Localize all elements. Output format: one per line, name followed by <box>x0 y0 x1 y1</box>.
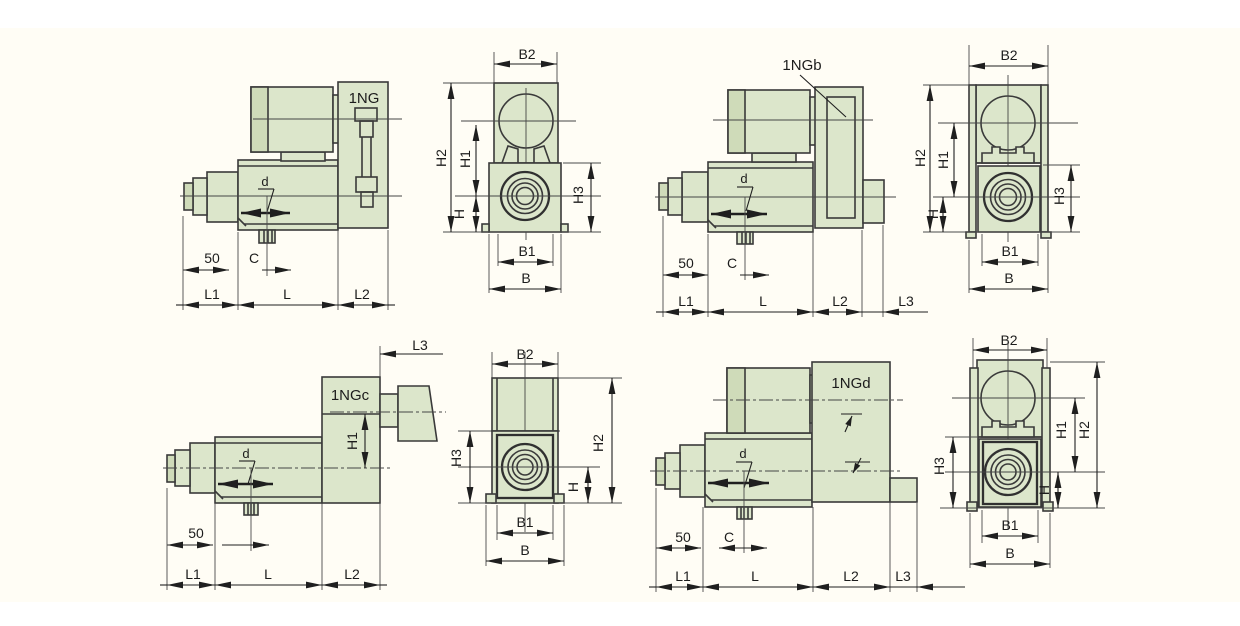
side-plate-left <box>970 368 978 507</box>
dim-label-l2: L2 <box>843 568 859 584</box>
dim-label-h3: H3 <box>1051 187 1067 205</box>
dim-label-h3: H3 <box>570 186 586 204</box>
dim-label-d: d <box>740 171 747 186</box>
technical-drawing-page: d 50 C L1 L L2 1NG B2 <box>0 0 1240 626</box>
dim-label-l3: L3 <box>412 337 428 353</box>
dim-label-b1: B1 <box>516 514 533 530</box>
base-flange-right <box>1041 232 1051 238</box>
dim-label-b: B <box>1005 545 1014 561</box>
motor-end-cap <box>251 87 268 152</box>
variant-label-1ng: 1NG <box>349 90 380 107</box>
dim-label-h1: H1 <box>1053 421 1069 439</box>
dim-label-c: C <box>249 250 259 266</box>
base-flange-left <box>966 232 976 238</box>
dim-label-h1: H1 <box>935 151 951 169</box>
shaft-knob <box>668 178 682 215</box>
gear-body <box>238 160 338 230</box>
dim-label-d: d <box>261 174 268 189</box>
variant-label-1ngc: 1NGc <box>331 387 370 404</box>
scanned-paper-background <box>0 28 1240 602</box>
motor-end-cap <box>727 368 745 433</box>
shaft-tip <box>167 455 175 482</box>
dim-label-b2: B2 <box>1000 47 1017 63</box>
motor-pedestal <box>752 153 796 162</box>
dim-label-l: L <box>264 566 272 582</box>
dim-label-h: H <box>925 209 941 219</box>
lower-housing <box>489 163 561 232</box>
dim-label-b1: B1 <box>1001 517 1018 533</box>
dim-label-h3: H3 <box>931 457 947 475</box>
dim-label-b1: B1 <box>518 243 535 259</box>
dim-label-h: H <box>451 209 467 219</box>
dim-label-50: 50 <box>204 250 220 266</box>
dim-label-50: 50 <box>675 529 691 545</box>
dim-label-b: B <box>1004 270 1013 286</box>
dim-label-l: L <box>751 568 759 584</box>
dim-label-l2: L2 <box>344 566 360 582</box>
dim-label-h2: H2 <box>590 434 606 452</box>
shaft-tip <box>659 183 668 210</box>
dim-label-l: L <box>283 286 291 302</box>
dim-label-l1: L1 <box>185 566 201 582</box>
dim-label-h2: H2 <box>912 149 928 167</box>
motor-pedestal <box>281 152 325 161</box>
base-flange-left <box>967 502 977 511</box>
side-plate-left <box>969 85 976 232</box>
rear-tab <box>890 478 917 502</box>
dim-label-h2: H2 <box>433 149 449 167</box>
dim-label-d: d <box>739 446 746 461</box>
dim-label-l3: L3 <box>898 293 914 309</box>
dim-label-50: 50 <box>678 255 694 271</box>
gear-body <box>215 437 322 503</box>
dim-label-l1: L1 <box>204 286 220 302</box>
dim-label-h2: H2 <box>1076 421 1092 439</box>
variant-label-1ngd: 1NGd <box>831 375 870 392</box>
dim-label-l1: L1 <box>678 293 694 309</box>
dim-label-b: B <box>521 270 530 286</box>
shaft-tip <box>656 458 665 485</box>
dimension-drawing-canvas: d 50 C L1 L L2 1NG B2 <box>0 0 1240 626</box>
shaft-knob <box>193 178 207 215</box>
dim-label-h: H <box>1036 485 1052 495</box>
dim-label-h: H <box>565 482 581 492</box>
dim-label-h1: H1 <box>344 432 360 450</box>
dim-label-b2: B2 <box>1000 332 1017 348</box>
base-flange-right <box>554 494 564 503</box>
dim-label-b1: B1 <box>1001 243 1018 259</box>
dim-label-h3: H3 <box>448 449 464 467</box>
dim-label-l2: L2 <box>832 293 848 309</box>
rear-tab <box>863 180 884 223</box>
shaft-tip <box>184 183 193 210</box>
dim-label-c: C <box>727 255 737 271</box>
dim-label-l: L <box>759 293 767 309</box>
gear-body <box>705 433 812 507</box>
base-flange-right <box>561 224 568 232</box>
base-flange-left <box>482 224 489 232</box>
motor-end-cap <box>728 90 745 153</box>
side-plate-right <box>1041 85 1048 232</box>
motor-neck <box>380 394 398 427</box>
dim-label-l1: L1 <box>675 568 691 584</box>
variant-label-1ngb: 1NGb <box>782 57 821 74</box>
dim-label-h1: H1 <box>457 150 473 168</box>
dim-label-l3: L3 <box>895 568 911 584</box>
base-flange-left <box>486 494 496 503</box>
dim-label-d: d <box>242 446 249 461</box>
dim-label-b: B <box>520 542 529 558</box>
shaft-step-block <box>207 172 238 222</box>
dim-label-c: C <box>724 529 734 545</box>
dim-label-50: 50 <box>188 525 204 541</box>
dim-label-l2: L2 <box>354 286 370 302</box>
dim-label-b2: B2 <box>518 46 535 62</box>
base-flange-right <box>1043 502 1053 511</box>
